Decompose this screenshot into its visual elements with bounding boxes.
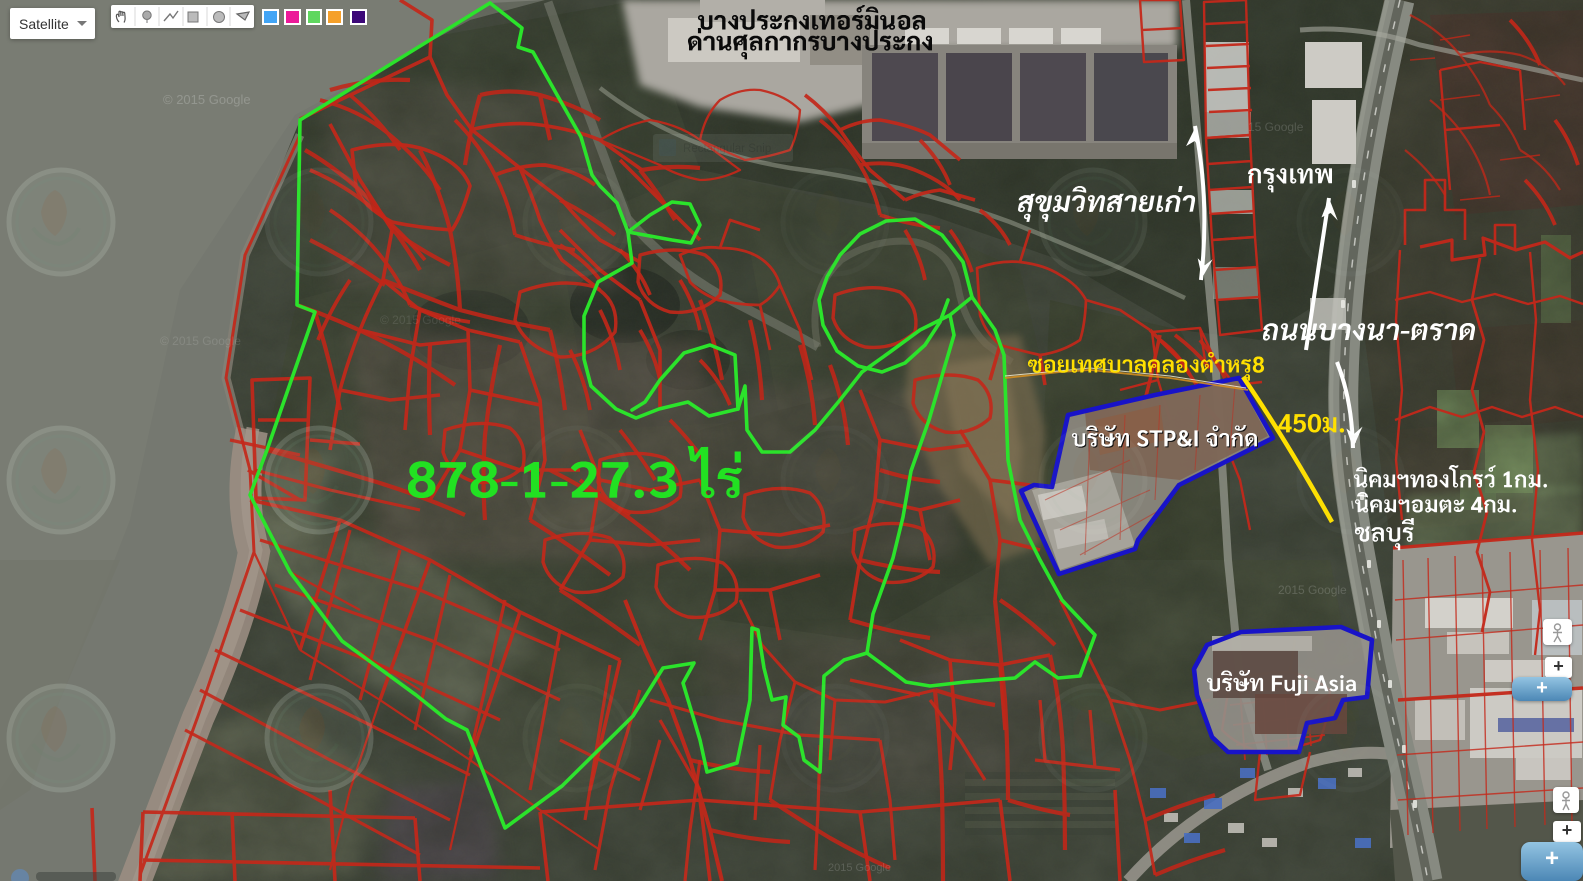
svg-text:15 Google: 15 Google (1248, 120, 1304, 134)
svg-text:© 2015 Google: © 2015 Google (380, 313, 461, 327)
svg-text:© 2015 Google: © 2015 Google (163, 92, 251, 107)
svg-text:2015 Google: 2015 Google (828, 862, 891, 874)
svg-text:Rectangular Snip: Rectangular Snip (683, 143, 771, 155)
svg-text:2015 Google: 2015 Google (1278, 583, 1347, 597)
svg-text:© 2015 Google: © 2015 Google (160, 334, 241, 348)
